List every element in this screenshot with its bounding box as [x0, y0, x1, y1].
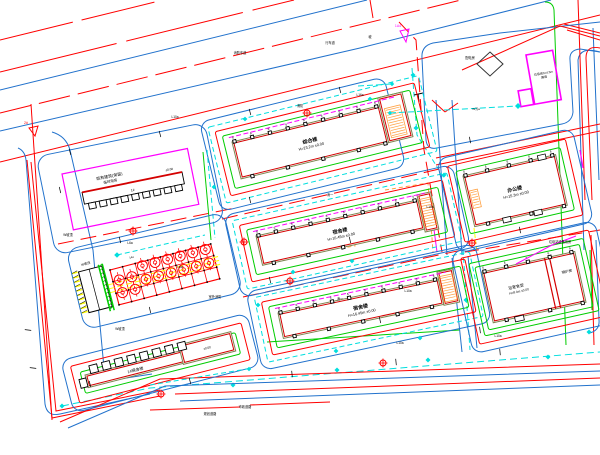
svg-text:L10a: L10a	[396, 341, 403, 345]
svg-text:消防车道: 消防车道	[234, 50, 248, 55]
svg-text:室外消防: 室外消防	[209, 294, 223, 299]
svg-text:规划道路: 规划道路	[204, 411, 218, 416]
svg-text:行车道: 行车道	[325, 40, 335, 45]
svg-text:L10a: L10a	[404, 289, 411, 293]
svg-text:W坡顶: W坡顶	[115, 326, 125, 331]
svg-text:W坡顶: W坡顶	[63, 232, 73, 237]
svg-text:1A4: 1A4	[395, 24, 401, 28]
svg-text:L6a: L6a	[177, 265, 183, 269]
svg-text:2#: 2#	[24, 121, 28, 125]
svg-text:围墙: 围墙	[541, 74, 548, 80]
svg-text:L10a: L10a	[171, 115, 178, 119]
svg-text:L10a: L10a	[494, 334, 501, 338]
svg-text:消防: 消防	[297, 103, 304, 108]
svg-text:L6a: L6a	[127, 241, 133, 245]
svg-text:1#: 1#	[130, 188, 135, 193]
svg-text:L10a: L10a	[426, 205, 433, 209]
svg-text:垃圾站设备用房: 垃圾站设备用房	[549, 239, 571, 244]
svg-text:消一: 消一	[337, 296, 344, 301]
svg-text:消一: 消一	[327, 192, 334, 197]
svg-text:L16a: L16a	[356, 93, 363, 97]
svg-text:市政道路: 市政道路	[239, 404, 253, 409]
svg-text:配电房: 配电房	[465, 55, 475, 60]
svg-text:W污a: W污a	[472, 106, 480, 111]
